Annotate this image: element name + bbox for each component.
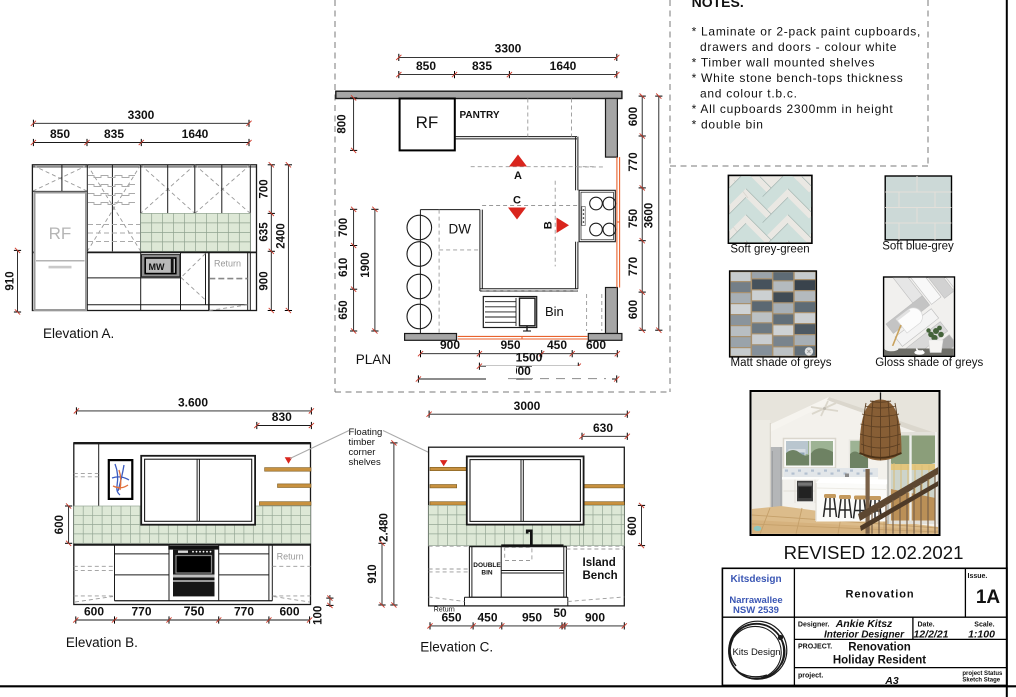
svg-text:* double bin: * double bin: [692, 118, 764, 132]
svg-text:C: C: [513, 195, 521, 207]
svg-text:630: 630: [593, 421, 613, 435]
svg-text:910: 910: [5, 271, 17, 290]
svg-text:* All cupboards 2300mm in heig: * All cupboards 2300mm in height: [692, 102, 894, 116]
svg-text:3600: 3600: [644, 203, 656, 229]
svg-text:700: 700: [259, 179, 271, 198]
svg-text:Return: Return: [214, 259, 241, 269]
svg-text:Ankie Kitsz: Ankie Kitsz: [835, 618, 893, 630]
svg-text:drawers and doors - colour whi: drawers and doors - colour white: [700, 40, 897, 54]
svg-text:450: 450: [547, 338, 567, 352]
svg-text:600: 600: [279, 605, 299, 619]
svg-text:900: 900: [585, 610, 605, 624]
svg-text:600: 600: [628, 107, 640, 126]
svg-text:Interior Designer: Interior Designer: [824, 630, 905, 641]
svg-text:Kits Design: Kits Design: [732, 647, 780, 658]
svg-text:910: 910: [367, 564, 379, 583]
svg-text:850: 850: [416, 59, 436, 73]
svg-text:800: 800: [337, 114, 349, 133]
svg-text:Issue.: Issue.: [968, 573, 988, 580]
svg-text:project.: project.: [798, 673, 823, 680]
svg-text:Bin: Bin: [545, 304, 564, 319]
svg-text:650: 650: [441, 610, 461, 624]
svg-text:3000: 3000: [514, 399, 541, 413]
svg-text:Island: Island: [583, 557, 616, 569]
svg-text:Soft blue-grey: Soft blue-grey: [882, 241, 954, 253]
svg-text:1:100: 1:100: [968, 629, 995, 641]
svg-text:RF: RF: [49, 224, 72, 243]
svg-text:PANTRY: PANTRY: [460, 110, 500, 121]
svg-text:2.480: 2.480: [379, 513, 391, 542]
svg-text:600: 600: [627, 516, 639, 535]
svg-text:750: 750: [628, 209, 640, 228]
svg-text:770: 770: [628, 257, 640, 276]
svg-text:650: 650: [338, 300, 350, 319]
svg-text:A: A: [514, 170, 522, 182]
svg-text:MW: MW: [149, 262, 165, 272]
svg-text:NSW 2539: NSW 2539: [733, 605, 779, 616]
svg-text:Renovation: Renovation: [846, 589, 915, 601]
svg-text:Bench: Bench: [583, 570, 618, 582]
svg-text:Matt shade of greys: Matt shade of greys: [731, 357, 832, 369]
svg-text:Soft grey-green: Soft grey-green: [730, 244, 809, 256]
svg-text:DW: DW: [449, 222, 472, 237]
svg-text:RF: RF: [416, 113, 439, 132]
svg-text:Elevation C.: Elevation C.: [420, 640, 493, 655]
svg-text:770: 770: [131, 605, 151, 619]
svg-text:635: 635: [259, 222, 271, 242]
svg-text:Scale.: Scale.: [974, 622, 994, 629]
svg-text:12/2/21: 12/2/21: [913, 629, 948, 641]
svg-text:700: 700: [338, 218, 350, 237]
svg-text:* White stone bench-tops thick: * White stone bench-tops thickness: [692, 71, 904, 85]
svg-text:600: 600: [54, 515, 66, 534]
svg-text:750: 750: [184, 605, 205, 619]
svg-text:950: 950: [522, 610, 542, 624]
svg-text:770: 770: [234, 605, 254, 619]
svg-text:835: 835: [104, 127, 124, 141]
svg-text:Renovation: Renovation: [848, 642, 911, 654]
svg-text:Holiday Resident: Holiday Resident: [833, 655, 926, 667]
svg-text:* Laminate or 2-pack paint cup: * Laminate or 2-pack paint cupboards,: [692, 25, 921, 39]
svg-text:shelves: shelves: [349, 457, 381, 468]
svg-text:REVISED 12.02.2021: REVISED 12.02.2021: [784, 542, 964, 563]
svg-text:1900: 1900: [360, 252, 372, 278]
svg-text:1500: 1500: [516, 351, 543, 365]
svg-text:450: 450: [477, 610, 497, 624]
svg-text:NOTES.: NOTES.: [692, 0, 744, 10]
svg-text:830: 830: [272, 410, 292, 424]
svg-text:50: 50: [553, 606, 567, 620]
svg-text:2400: 2400: [276, 223, 288, 249]
svg-text:PLAN: PLAN: [356, 352, 391, 367]
svg-text:850: 850: [50, 127, 70, 141]
svg-text:PROJECT.: PROJECT.: [798, 644, 832, 651]
svg-text:100: 100: [313, 606, 325, 625]
svg-text:600: 600: [628, 300, 640, 319]
svg-text:BIN: BIN: [481, 570, 493, 577]
svg-text:1A: 1A: [976, 587, 1001, 608]
svg-text:Elevation A.: Elevation A.: [43, 326, 114, 341]
svg-text:Gloss shade of greys: Gloss shade of greys: [875, 357, 983, 369]
svg-text:770: 770: [628, 152, 640, 171]
svg-text:1640: 1640: [550, 59, 577, 73]
svg-text:project Status: project Status: [962, 671, 1003, 677]
svg-text:Kitsdesign: Kitsdesign: [730, 574, 781, 585]
svg-text:* Timber wall mounted shelves: * Timber wall mounted shelves: [692, 56, 876, 70]
svg-text:610: 610: [338, 258, 350, 277]
svg-text:900: 900: [440, 338, 460, 352]
svg-text:and colour t.b.c.: and colour t.b.c.: [700, 87, 798, 101]
svg-text:3300: 3300: [495, 42, 522, 56]
svg-text:600: 600: [84, 605, 104, 619]
svg-text:3300: 3300: [128, 108, 155, 122]
svg-text:Elevation B.: Elevation B.: [66, 635, 138, 650]
svg-text:Return: Return: [277, 552, 304, 562]
svg-text:Date.: Date.: [918, 622, 935, 629]
svg-text:Designer.: Designer.: [798, 622, 830, 629]
svg-text:835: 835: [472, 59, 492, 73]
svg-text:Sketch Stage: Sketch Stage: [962, 678, 1000, 684]
svg-text:1640: 1640: [182, 127, 209, 141]
svg-text:DOUBLE: DOUBLE: [473, 562, 501, 569]
svg-text:B: B: [543, 221, 555, 229]
svg-text:900: 900: [259, 271, 271, 290]
svg-text:600: 600: [586, 338, 606, 352]
svg-text:3.600: 3.600: [178, 396, 208, 410]
